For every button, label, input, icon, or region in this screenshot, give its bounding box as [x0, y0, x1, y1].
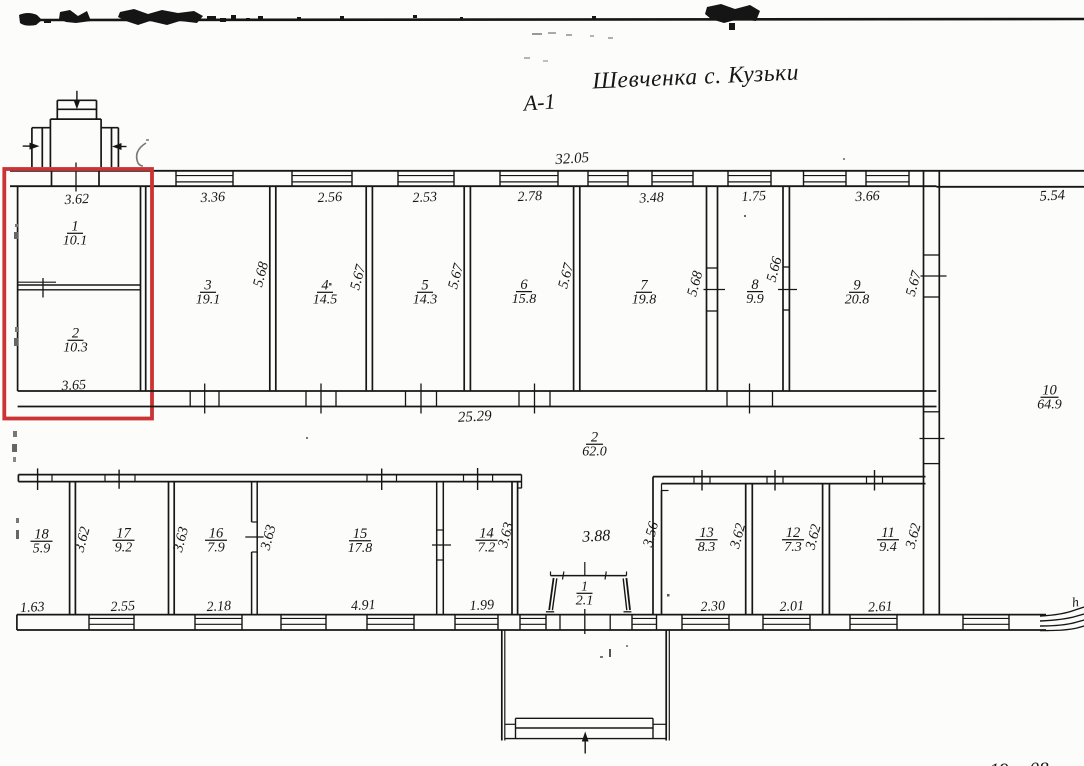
svg-text:14: 14: [479, 526, 494, 542]
svg-text:3.62: 3.62: [63, 192, 89, 208]
svg-text:8.3: 8.3: [698, 540, 716, 555]
svg-text:12: 12: [786, 525, 801, 541]
svg-text:2.56: 2.56: [317, 190, 342, 206]
svg-text:62.0: 62.0: [582, 445, 607, 460]
svg-text:32.05: 32.05: [554, 150, 590, 168]
svg-text:19.8: 19.8: [632, 293, 657, 308]
svg-text:5.54: 5.54: [1039, 187, 1065, 204]
svg-text:3.48: 3.48: [638, 190, 664, 206]
svg-text:2.18: 2.18: [206, 599, 231, 615]
svg-text:2.53: 2.53: [412, 190, 437, 206]
svg-text:2.61: 2.61: [868, 599, 893, 615]
svg-text:2.1: 2.1: [576, 594, 594, 609]
svg-text:2.30: 2.30: [700, 599, 725, 615]
svg-text:10.3: 10.3: [63, 341, 88, 356]
svg-text:3: 3: [203, 278, 211, 294]
svg-text:08: 08: [1030, 759, 1050, 766]
svg-text:3.36: 3.36: [199, 190, 225, 206]
svg-text:1: 1: [581, 579, 588, 594]
svg-text:6: 6: [520, 277, 528, 293]
svg-text:8: 8: [751, 277, 759, 293]
svg-text:15: 15: [353, 526, 368, 542]
svg-text:16: 16: [209, 526, 224, 542]
svg-text:11: 11: [881, 525, 894, 541]
svg-text:2.01: 2.01: [779, 599, 804, 615]
svg-text:1.63: 1.63: [20, 600, 45, 616]
svg-text:25.29: 25.29: [458, 408, 493, 426]
svg-text:10: 10: [1042, 383, 1057, 399]
svg-text:2.55: 2.55: [110, 599, 135, 615]
svg-text:5.9: 5.9: [33, 542, 51, 557]
svg-text:19: 19: [990, 760, 1010, 766]
svg-text:3.65: 3.65: [60, 378, 86, 394]
svg-text:5: 5: [421, 278, 428, 294]
svg-text:7.3: 7.3: [784, 540, 802, 555]
svg-text:А-1: А-1: [521, 88, 556, 115]
svg-text:7: 7: [640, 278, 648, 294]
svg-text:17: 17: [116, 526, 131, 542]
svg-text:14.5: 14.5: [313, 293, 338, 308]
svg-text:9.2: 9.2: [115, 541, 133, 556]
svg-text:4.91: 4.91: [351, 598, 376, 614]
svg-text:20.8: 20.8: [845, 293, 870, 308]
svg-text:1.75: 1.75: [741, 189, 766, 205]
svg-text:18: 18: [34, 527, 49, 543]
svg-text:10.1: 10.1: [63, 234, 88, 249]
svg-text:9.9: 9.9: [746, 292, 764, 307]
svg-text:9.4: 9.4: [879, 540, 897, 555]
svg-text:1.99: 1.99: [469, 598, 494, 614]
svg-text:3.88: 3.88: [581, 527, 611, 545]
svg-text:7.2: 7.2: [478, 541, 496, 556]
svg-text:17.8: 17.8: [348, 541, 373, 556]
svg-text:2: 2: [591, 430, 598, 446]
svg-text:14.3: 14.3: [413, 293, 438, 308]
svg-text:64.9: 64.9: [1037, 398, 1062, 413]
svg-text:9: 9: [853, 278, 861, 294]
svg-text:2.78: 2.78: [517, 189, 542, 205]
svg-text:2: 2: [72, 326, 79, 342]
svg-text:19.1: 19.1: [196, 293, 221, 308]
svg-text:1: 1: [71, 219, 78, 235]
svg-text:13: 13: [699, 525, 714, 541]
svg-text:15.8: 15.8: [512, 292, 537, 307]
svg-text:4: 4: [321, 278, 328, 294]
svg-text:7.9: 7.9: [207, 541, 225, 556]
svg-text:3.66: 3.66: [854, 189, 880, 205]
